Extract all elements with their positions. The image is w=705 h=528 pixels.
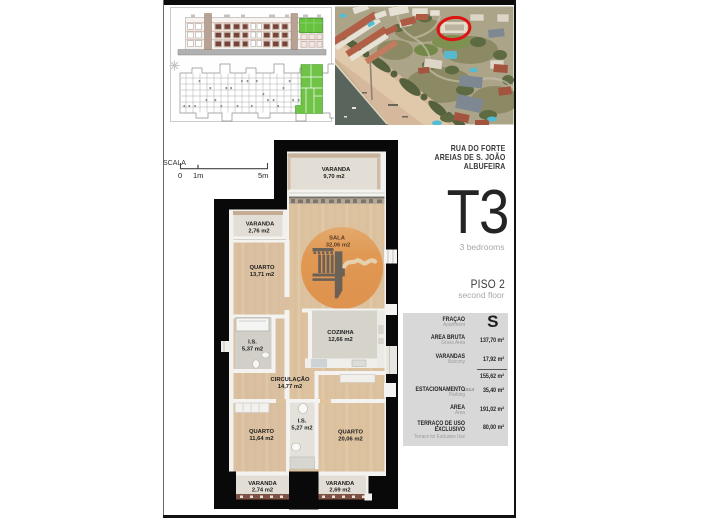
svg-text:9,70 m2: 9,70 m2 [323,174,344,180]
svg-text:2,69 m2: 2,69 m2 [329,488,350,494]
svg-text:VARANDA: VARANDA [246,222,275,228]
svg-text:SALA: SALA [329,236,346,242]
svg-text:VARANDA: VARANDA [326,481,355,487]
svg-text:QUARTO: QUARTO [249,429,275,435]
svg-text:I.S.: I.S. [248,340,257,346]
svg-text:12,66 m2: 12,66 m2 [328,337,353,343]
svg-text:2,74 m2: 2,74 m2 [252,488,273,494]
svg-text:I.S.: I.S. [298,419,307,425]
svg-text:VARANDA: VARANDA [322,167,351,173]
svg-text:VARANDA: VARANDA [248,481,277,487]
svg-text:COZINHA: COZINHA [327,330,354,336]
svg-text:13,71 m2: 13,71 m2 [250,272,275,278]
svg-text:SCALA: SCALA [163,160,186,167]
svg-text:14,77 m2: 14,77 m2 [278,384,303,390]
svg-text:CIRCULAÇÃO: CIRCULAÇÃO [271,376,310,383]
svg-text:1m: 1m [193,171,203,180]
svg-text:11,64 m2: 11,64 m2 [249,436,273,442]
svg-text:5,27 m2: 5,27 m2 [291,426,312,432]
svg-text:0: 0 [178,171,182,180]
svg-text:2,76 m2: 2,76 m2 [248,229,269,235]
svg-text:QUARTO: QUARTO [249,265,275,271]
svg-text:5,37 m2: 5,37 m2 [242,347,263,353]
